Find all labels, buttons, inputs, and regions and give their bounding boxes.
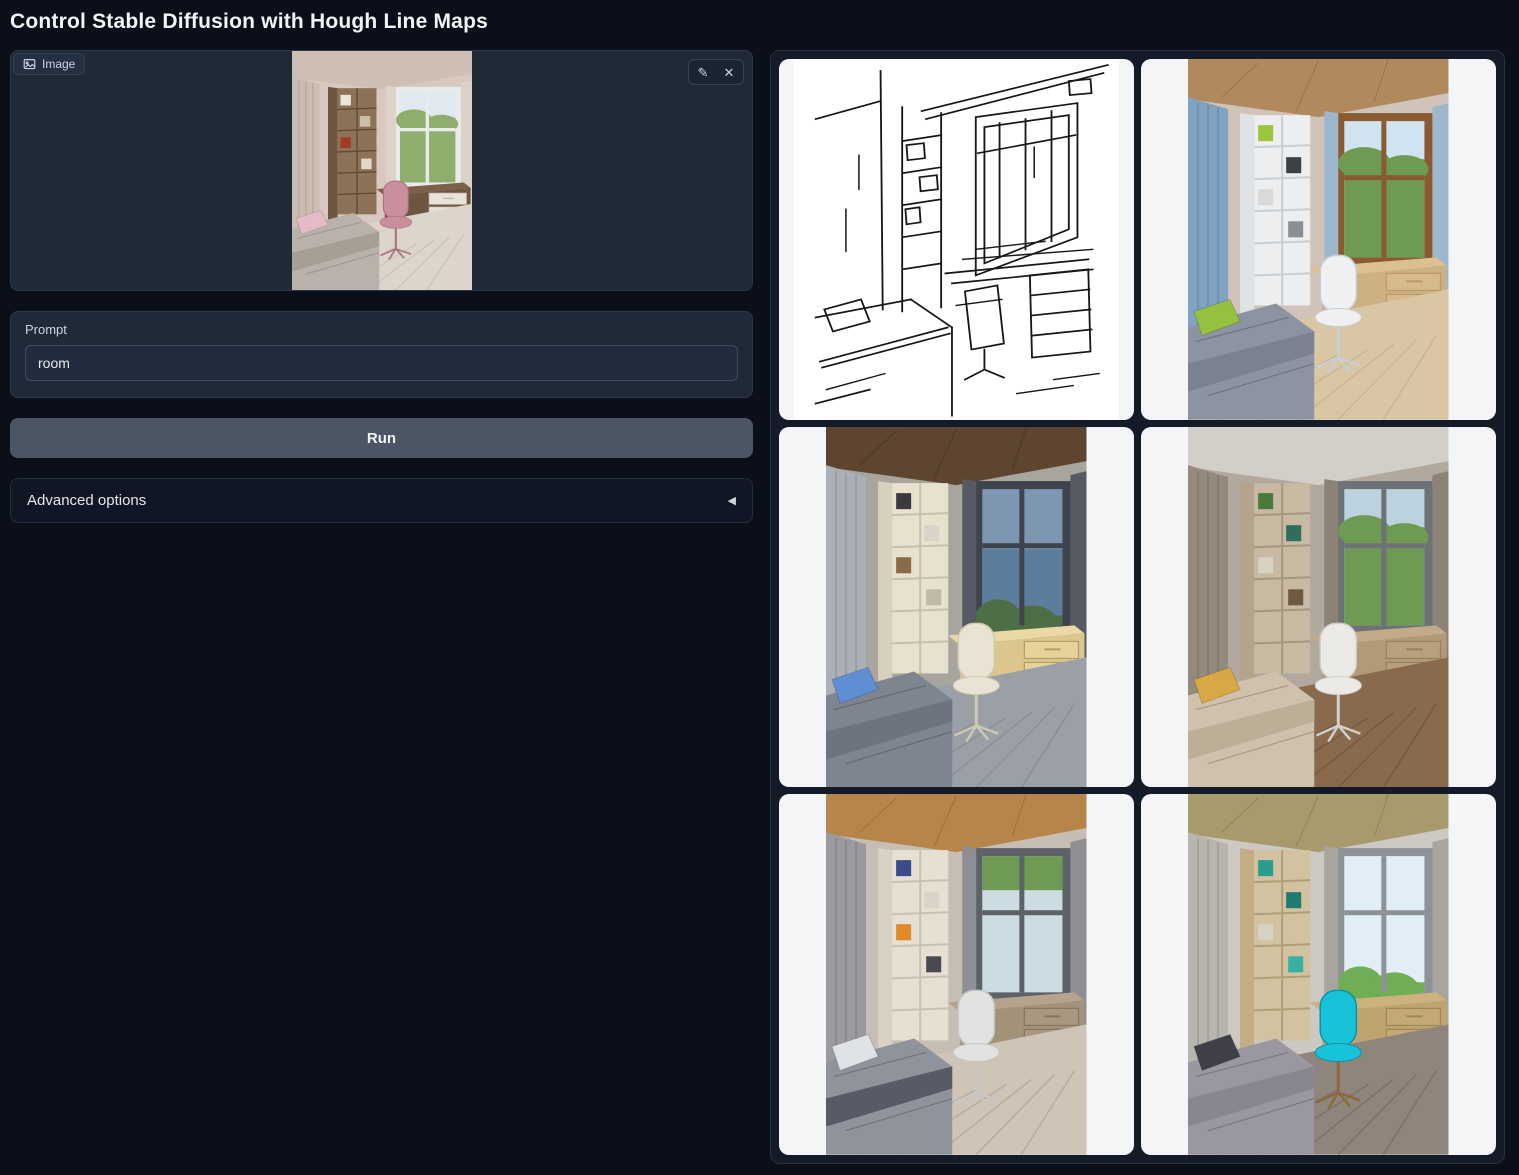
gallery-item-result-4[interactable]: [779, 794, 1134, 1155]
advanced-options-accordion[interactable]: Advanced options ◀: [10, 478, 753, 523]
input-column: Image ✎ ✕ Prompt Run Advanced options ◀: [10, 50, 753, 523]
run-button[interactable]: Run: [10, 418, 753, 458]
main-layout: Image ✎ ✕ Prompt Run Advanced options ◀: [10, 50, 1505, 1164]
prompt-input[interactable]: [25, 345, 738, 381]
image-label: Image: [42, 57, 75, 71]
input-image-thumbnail[interactable]: [292, 51, 472, 290]
generated-room-image-4: [826, 794, 1086, 1155]
gallery-item-result-2[interactable]: [779, 427, 1134, 788]
collapse-arrow-icon: ◀: [728, 494, 736, 507]
image-label-badge: Image: [13, 53, 85, 75]
advanced-options-label: Advanced options: [27, 492, 146, 509]
image-input-panel[interactable]: Image ✎ ✕: [10, 50, 753, 291]
result-gallery: [770, 50, 1505, 1164]
generated-room-image-2: [826, 427, 1086, 788]
gallery-item-result-3[interactable]: [1141, 427, 1496, 788]
clear-image-button[interactable]: ✕: [717, 62, 741, 82]
prompt-label: Prompt: [25, 322, 738, 337]
image-icon: [23, 58, 36, 71]
prompt-panel: Prompt: [10, 311, 753, 398]
hough-line-map-image: [794, 59, 1119, 420]
image-toolbar: ✎ ✕: [688, 59, 744, 85]
generated-room-image-5: [1188, 794, 1448, 1155]
page-title: Control Stable Diffusion with Hough Line…: [10, 10, 1505, 34]
app-root: Control Stable Diffusion with Hough Line…: [0, 0, 1519, 1164]
input-room-photo: [292, 51, 472, 290]
gallery-item-result-5[interactable]: [1141, 794, 1496, 1155]
gallery-item-result-1[interactable]: [1141, 59, 1496, 420]
edit-image-button[interactable]: ✎: [691, 62, 715, 82]
generated-room-image-1: [1188, 59, 1448, 420]
gallery-item-hough-map[interactable]: [779, 59, 1134, 420]
generated-room-image-3: [1188, 427, 1448, 788]
